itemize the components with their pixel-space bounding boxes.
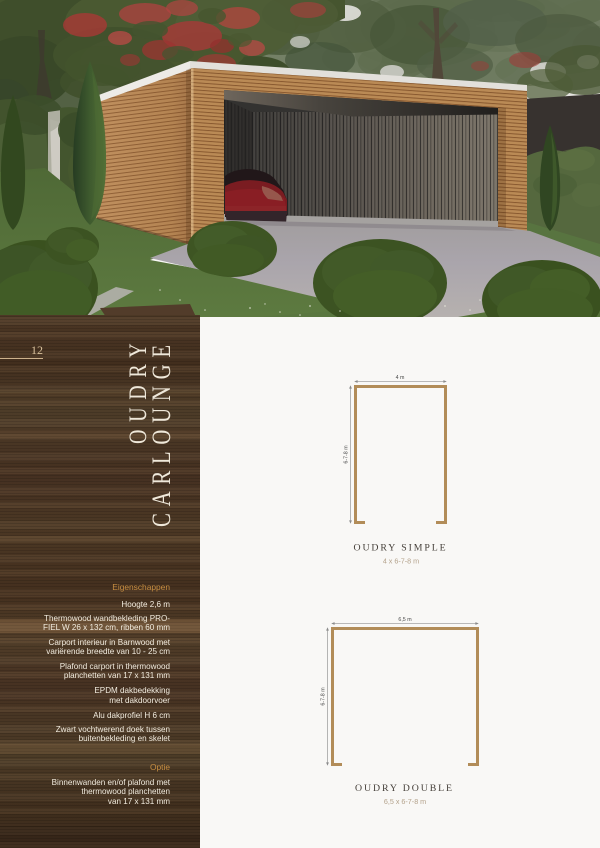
svg-text:6-7-8 m: 6-7-8 m (321, 687, 327, 706)
svg-text:OUDRY DOUBLE: OUDRY DOUBLE (355, 783, 454, 794)
svg-text:4 x 6-7-8 m: 4 x 6-7-8 m (383, 557, 419, 566)
svg-text:6,5 m: 6,5 m (398, 617, 412, 623)
svg-text:OUDRY SIMPLE: OUDRY SIMPLE (353, 542, 447, 553)
svg-text:4 m: 4 m (396, 375, 405, 381)
svg-text:6-7-8 m: 6-7-8 m (344, 445, 350, 464)
svg-text:6,5 x 6-7-8 m: 6,5 x 6-7-8 m (384, 797, 426, 806)
